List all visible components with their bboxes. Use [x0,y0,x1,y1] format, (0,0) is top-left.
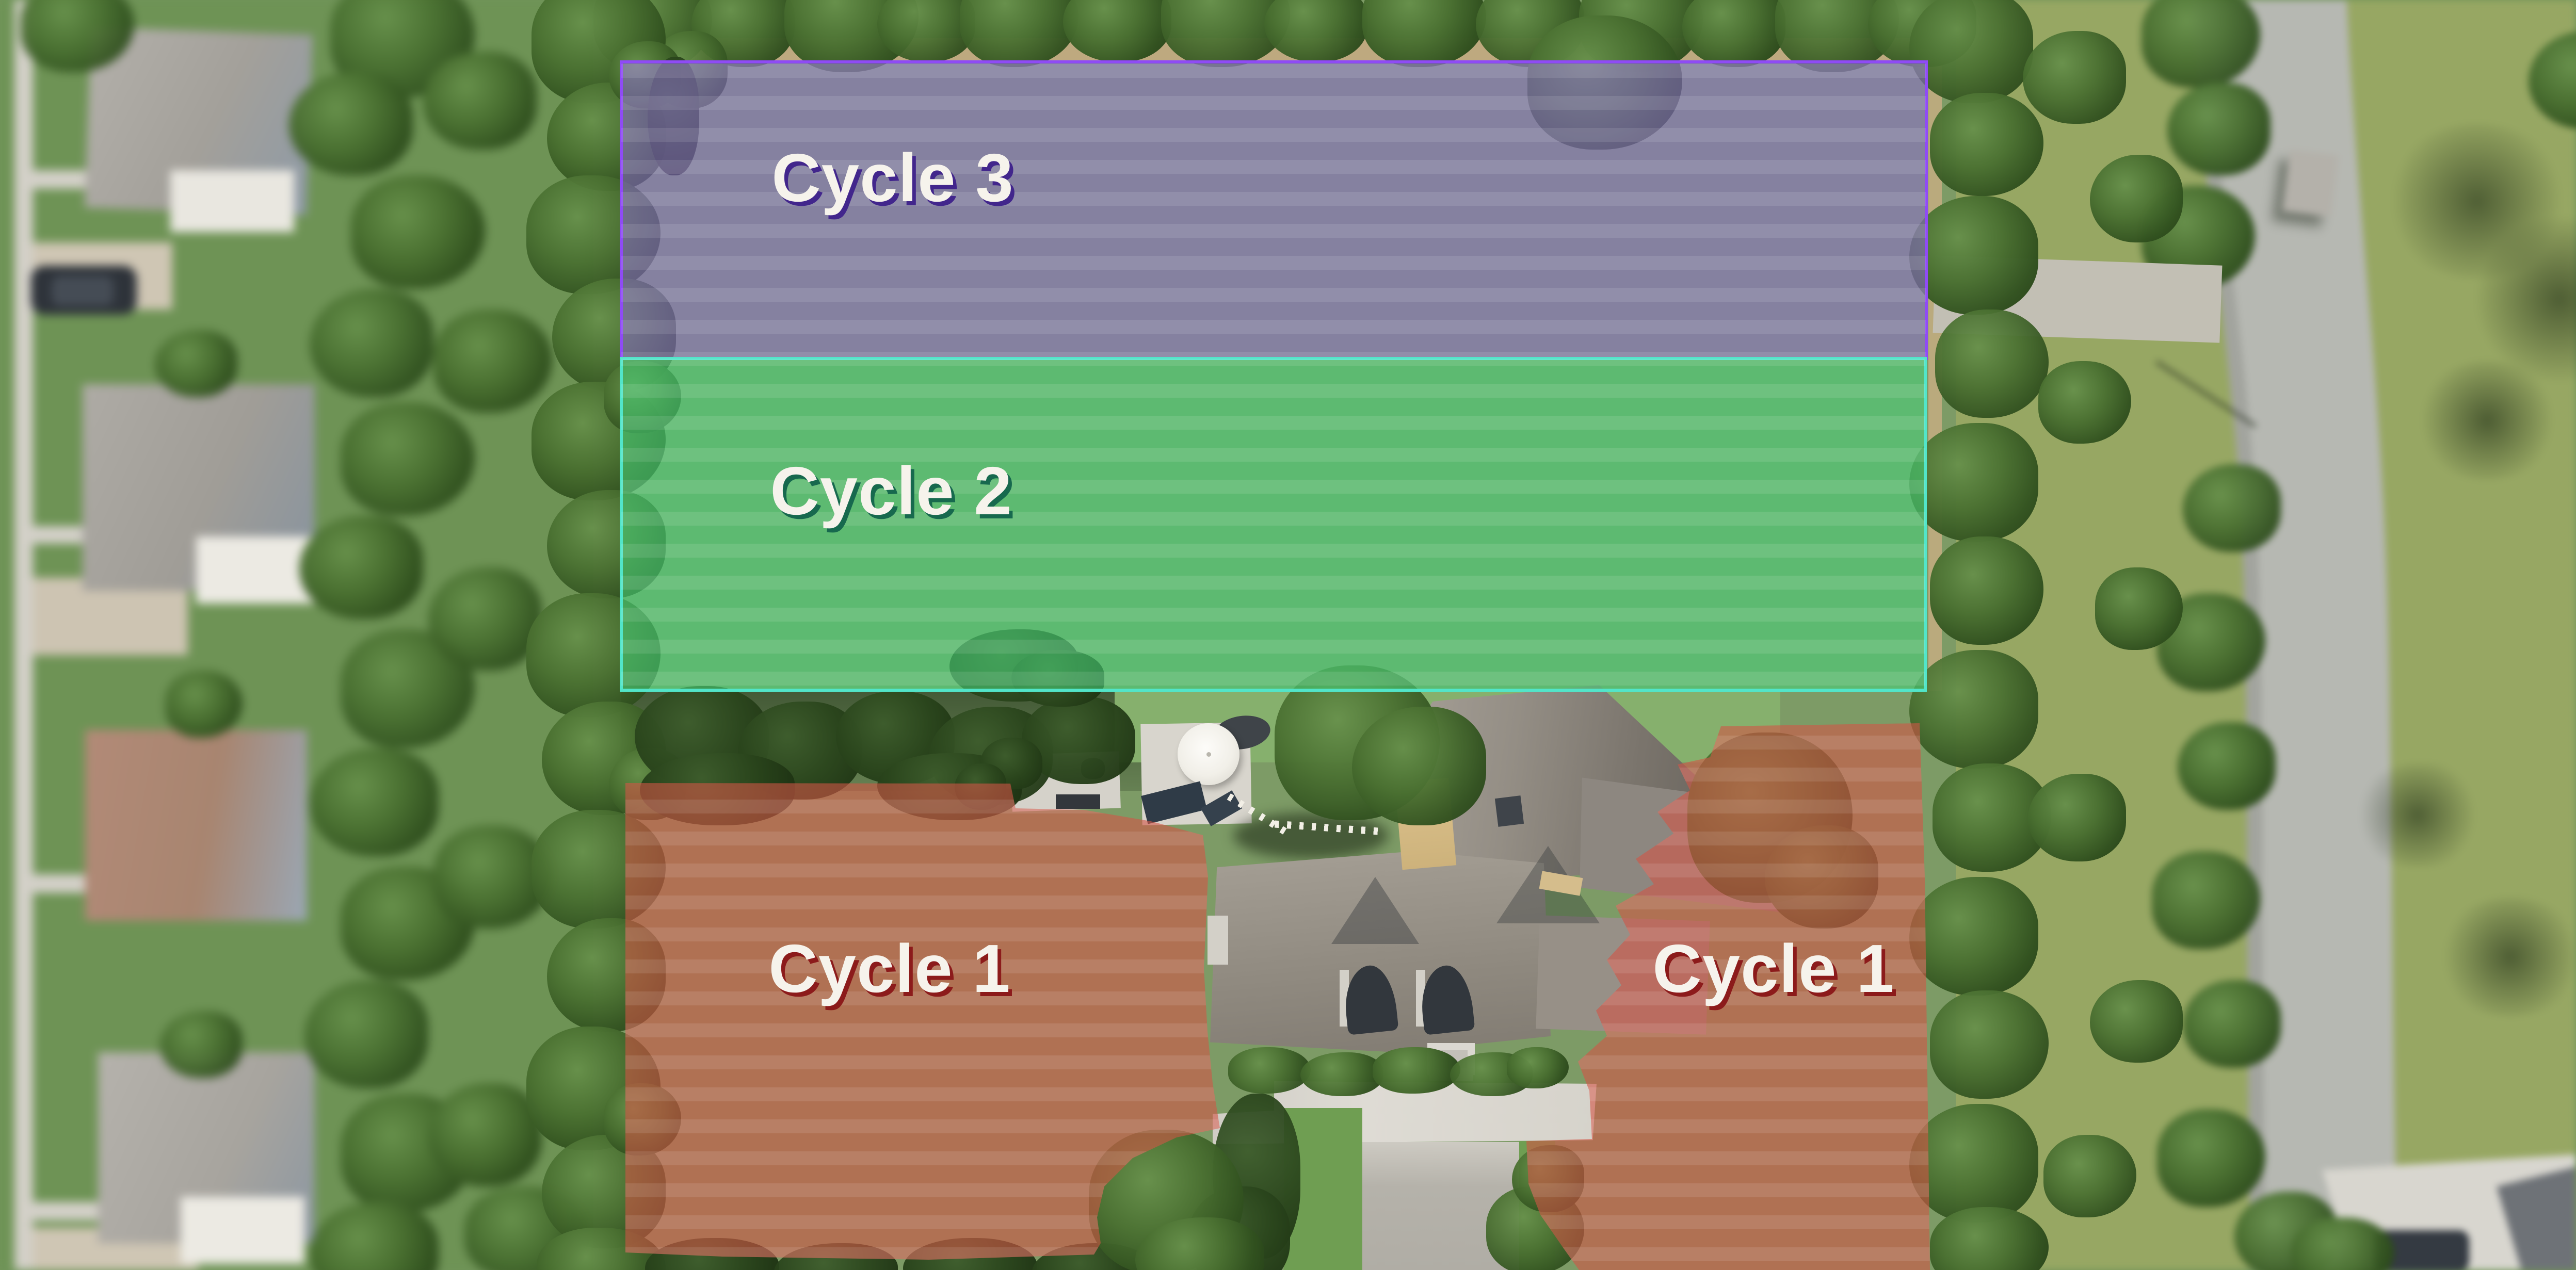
picket-fence-slant [1227,793,1290,836]
tree-canopy [341,867,475,980]
house-side-trim [1208,916,1228,965]
walkway [33,1202,126,1220]
front-steps-inner [1435,1050,1468,1068]
neighbor-driveway [2322,1154,2576,1270]
zone-label-cycle-1-left: Cycle 1 [768,935,1010,1003]
tree-canopy [341,1094,475,1212]
tree-canopy [2183,464,2281,552]
tree-canopy [341,629,475,748]
dirt-path-top [621,38,1927,63]
roof-tan-panel-small [1539,871,1583,895]
driveway-apron [1213,1077,1597,1144]
tree-canopy [351,175,485,289]
patio-main [1140,722,1251,825]
backyard-shadow-band [621,690,1142,791]
left-lawn-base [0,0,655,1270]
walkway [33,170,136,189]
tree-canopy [2167,83,2271,175]
shrub [1450,1052,1533,1096]
driveway [33,242,172,310]
parked-car [2374,1230,2469,1270]
tree-canopy [2183,980,2281,1068]
tree-canopy-dark [1022,696,1135,784]
tree-canopy [1909,196,2038,315]
sidewalk [14,0,33,1270]
tree-canopy [299,516,423,619]
walkway [33,874,152,893]
gable-shading [1496,846,1600,923]
tree-canopy [960,0,1078,67]
tree-canopy [1935,310,2049,418]
tree-canopy [289,72,413,175]
tree-canopy [423,52,537,150]
tree-canopy [547,918,666,1032]
tree-shadow [2415,361,2559,480]
tree-canopy-dark [640,753,795,825]
zone-label-cycle-3: Cycle 3 [771,144,1013,212]
tree-canopy-dark [1213,1094,1300,1259]
tree-canopy [1909,650,2038,769]
tree-canopy-dark [836,691,955,784]
tree-canopy [1579,0,1703,72]
fence-shadow [1233,812,1388,859]
tree-canopy [464,1186,588,1270]
tree-canopy [2291,1217,2394,1270]
tree-canopy [1476,0,1584,67]
tree-canopy [341,402,475,516]
tree-canopy-dark [645,1238,779,1270]
tree-canopy [2090,980,2183,1063]
tree-canopy [1930,1207,2049,1270]
house-roof-front [1210,851,1551,1052]
tree-shadow [2384,124,2570,279]
tree-canopy-dark [949,629,1078,702]
tree-canopy [691,0,795,67]
tree-canopy [1063,0,1171,62]
tree-canopy [1486,1186,1584,1270]
tree-canopy [155,330,237,397]
tree-canopy [650,31,728,108]
tree-canopy [1362,0,1486,67]
tree-canopy [1527,15,1682,150]
front-lawn-right [1519,1141,1555,1270]
tree-canopy-dark [1032,1243,1151,1270]
tree-canopy [532,810,666,929]
neighbor-house-porch [196,536,315,604]
tree-canopy-dark [929,707,1053,805]
road [2192,0,2398,1270]
tree-canopy [1687,732,1853,903]
tree-canopy-dark [648,57,699,175]
tree-canopy [609,748,686,820]
tree-canopy [330,0,475,98]
road-right-blurred [0,0,2576,1270]
tree-canopy-dark [1187,1186,1290,1270]
dormer-trim [1340,970,1349,1027]
tree-canopy [2043,1135,2136,1217]
zone-cycle-1-left-stripes [625,783,1220,1260]
tree-canopy [1930,93,2043,196]
tree-canopy [526,1027,661,1150]
driveway-slab [1361,1142,1522,1270]
tree-canopy [428,1083,542,1186]
tree-canopy [593,0,712,72]
tree-canopy [2038,361,2131,444]
roof-tan-panel [1395,778,1456,870]
tree-canopy [1275,665,1440,820]
tree-canopy [1930,536,2043,645]
tree-canopy [1682,0,1785,67]
house-roof-right-wing [1556,752,1824,940]
tree-canopy [433,310,552,413]
tree-canopy [2152,851,2260,949]
tree-canopy [1352,707,1486,825]
tree-canopy [21,0,134,72]
driveway [33,578,188,655]
roadside-shed [2282,150,2339,217]
neighbor-house-roof [98,1052,315,1243]
neighbor-house-porch [181,1197,304,1264]
patio-umbrella [1178,723,1239,785]
tree-canopy-dark [955,763,1006,810]
tree-canopy [2023,31,2126,124]
patio-table [1081,758,1105,779]
picket-fence [1275,821,1386,836]
tree-canopy [310,748,439,856]
shrub [1373,1047,1460,1094]
aerial-map-canvas: Cycle 3 Cycle 2 Cycle 1 Cycle 1 [0,0,2576,1270]
tree-canopy [2028,774,2126,861]
tree-canopy [1765,825,1878,929]
streetlight-shadow [2155,360,2257,428]
front-steps [1427,1043,1475,1075]
tree-canopy [2157,593,2265,691]
backyard-lawn [1115,690,1780,762]
lounge-chairs [1141,781,1207,824]
tree-canopy [433,825,552,929]
neighbor-house-roof [83,384,315,591]
tree-canopy [428,567,542,671]
tree-canopy [310,1202,439,1270]
zone-label-cycle-1-right: Cycle 1 [1652,935,1894,1003]
tree-canopy [160,1011,243,1078]
front-lawn-left [1284,1108,1362,1270]
zone-label-cycle-2: Cycle 2 [770,457,1012,525]
tree-canopy [542,1135,666,1248]
house-roof-upper [1377,671,1709,903]
tree-canopy [1909,0,2033,103]
tree-canopy [2095,567,2183,650]
tree-canopy [784,0,919,72]
walkway [33,526,116,544]
tree-canopy [2178,722,2276,810]
tree-canopy [2142,186,2255,289]
tree-canopy [604,1083,681,1155]
shrub [1228,1047,1311,1094]
patio-step [1058,756,1089,774]
tree-canopy [1512,1145,1584,1212]
neighbor-roof-corner [2497,1167,2576,1270]
umbrella-pole [1206,752,1211,757]
road-shoulder [2192,0,2266,1270]
dormer-trim [1416,970,1425,1027]
tree-canopy [526,593,661,717]
hot-tub-cover [1212,712,1273,753]
side-dirt-strip [1928,57,1942,691]
front-walk [1429,1068,1473,1081]
tree-canopy [1264,0,1367,62]
road-shapes [0,0,2576,1270]
grill [1056,794,1100,809]
tree-canopy [310,289,433,397]
lounge-chair [1201,790,1243,826]
tree-canopy [165,671,243,738]
tree-canopy [609,41,681,108]
right-field-base [1904,0,2576,1270]
tree-shadow [2353,763,2482,867]
gable-shading [1331,877,1419,944]
tree-canopy [1930,990,2049,1099]
driveway [33,1228,198,1270]
tree-canopy [1868,0,1976,67]
tree-canopy [2234,1192,2338,1270]
tree-canopy [1909,423,2038,542]
tree-canopy [1161,0,1290,67]
shrub [1507,1047,1569,1088]
dormer-arch-window [1341,963,1398,1035]
tree-canopy [547,490,666,598]
tree-canopy [1909,877,2038,996]
tree-canopy [1775,0,1899,72]
shrub [1300,1052,1383,1096]
neighbor-house-porch [170,170,294,232]
tree-canopy-dark [1011,650,1104,707]
tree-canopy [1933,763,2051,872]
tree-canopy [542,702,666,815]
tree-canopy-dark [738,702,862,800]
tree-canopy [1909,1104,2038,1223]
parked-car-roof [52,276,114,306]
tree-canopy-dark [774,1243,898,1270]
tree-canopy [1089,1130,1244,1270]
zone-overlays [0,0,2576,1270]
neighborhood-left-blurred [0,0,2576,1270]
tree-canopy [304,980,428,1088]
dormer-arch-window [1418,963,1475,1035]
chimney [1495,795,1524,827]
tree-canopy [552,279,676,392]
tree-shadow [2472,217,2576,382]
tree-canopy [2142,0,2260,88]
clearing-path [1933,255,2223,343]
tree-canopy [526,175,661,294]
zone-cycle-1-left-overlay [625,783,1220,1260]
tree-canopy-dark [877,753,1022,820]
tree-canopy-dark [903,1238,1037,1270]
neighbor-house-roof [85,27,313,216]
tree-canopy [547,83,666,191]
tree-canopy-dark [980,738,1042,789]
tree-canopy-dark [635,686,769,789]
tree-canopy [604,361,681,433]
tree-canopy [877,0,975,62]
tree-canopy [532,382,666,500]
tree-canopy [537,1228,666,1270]
parked-car [31,266,137,315]
tree-shadow [2436,898,2576,1016]
tree-canopy [532,0,666,103]
patio-extension [1010,751,1121,811]
tree-canopy [2090,155,2183,242]
tree-canopy [2529,31,2576,129]
tree-canopy [1135,1217,1264,1270]
tree-canopy [2157,1109,2265,1207]
neighbor-house-roof [85,730,307,921]
property-scene [0,0,2576,1270]
